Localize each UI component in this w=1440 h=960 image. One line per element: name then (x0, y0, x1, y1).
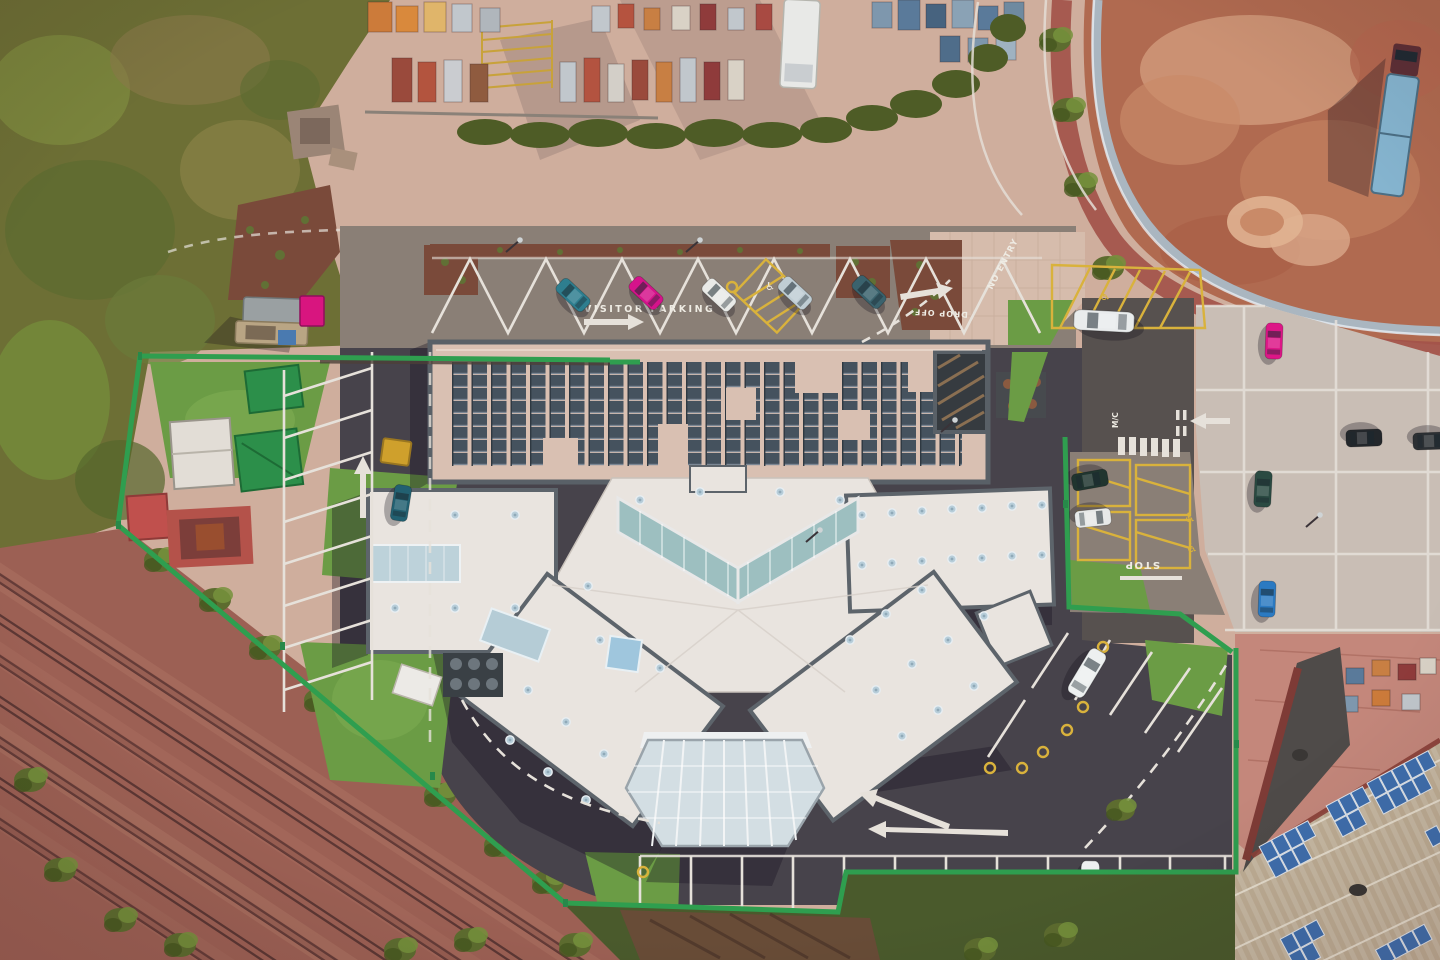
photo-vignette (0, 0, 1440, 960)
aerial-photo: ♿ ♿ ♿ ♿ VISITOR PARKING NO ENTRY DROP OF… (0, 0, 1440, 960)
